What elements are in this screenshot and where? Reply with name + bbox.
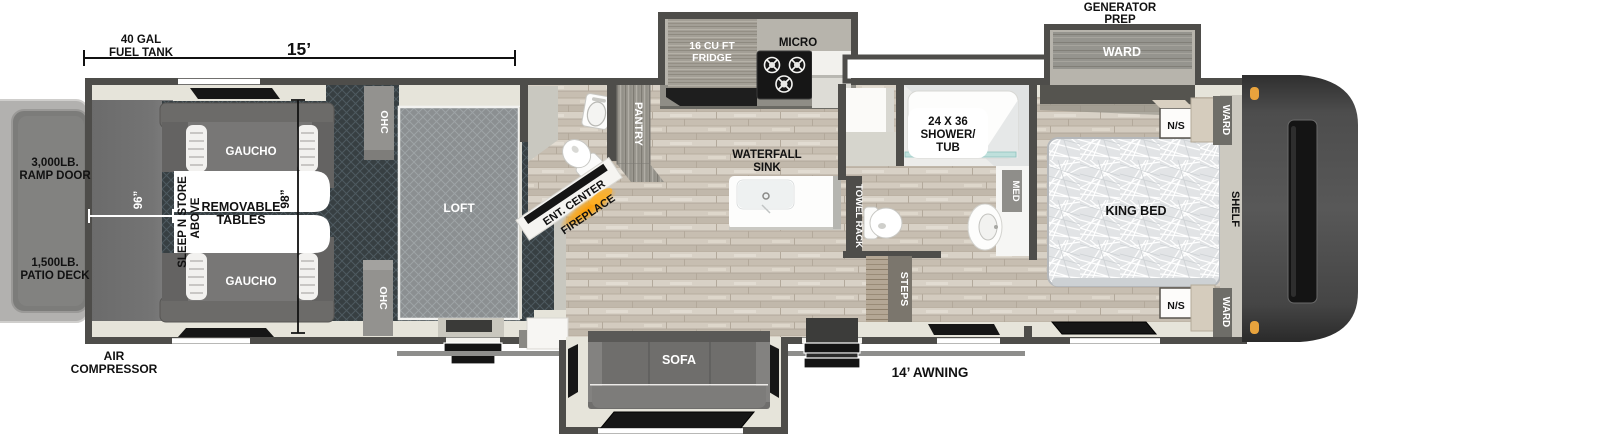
svg-text:ABOVE: ABOVE (190, 197, 202, 238)
svg-text:24 X 36: 24 X 36 (928, 116, 968, 128)
svg-text:WARD: WARD (1220, 297, 1231, 328)
svg-text:SHOWER/: SHOWER/ (921, 129, 977, 141)
svg-text:REMOVABLE: REMOVABLE (202, 200, 281, 214)
svg-text:PANTRY: PANTRY (632, 102, 644, 147)
svg-text:AIR: AIR (104, 349, 125, 363)
svg-text:KING BED: KING BED (1105, 204, 1166, 218)
svg-text:N/S: N/S (1167, 300, 1185, 312)
svg-text:TUB: TUB (936, 142, 960, 154)
svg-text:WARD: WARD (1220, 105, 1231, 136)
svg-text:TOWEL RACK: TOWEL RACK (853, 184, 864, 248)
svg-text:GENERATOR: GENERATOR (1084, 2, 1157, 14)
svg-text:OHC: OHC (378, 110, 390, 134)
svg-text:GAUCHO: GAUCHO (225, 146, 276, 158)
svg-text:COMPRESSOR: COMPRESSOR (71, 362, 158, 376)
svg-text:PATIO DECK: PATIO DECK (20, 270, 90, 282)
svg-text:N/S: N/S (1167, 120, 1185, 132)
svg-text:TABLES: TABLES (216, 213, 265, 227)
svg-text:SLEEP N STORE: SLEEP N STORE (177, 176, 189, 268)
svg-text:96”: 96” (133, 191, 145, 210)
svg-text:15’: 15’ (287, 39, 311, 59)
svg-text:FRIDGE: FRIDGE (692, 52, 732, 64)
svg-text:LOFT: LOFT (443, 201, 475, 215)
svg-text:WARD: WARD (1103, 45, 1141, 59)
svg-text:WATERFALL: WATERFALL (732, 149, 801, 161)
svg-text:MED: MED (1010, 180, 1021, 201)
svg-text:SINK: SINK (753, 162, 781, 174)
svg-text:FUEL TANK: FUEL TANK (109, 47, 174, 59)
svg-text:GAUCHO: GAUCHO (225, 276, 276, 288)
svg-text:STEPS: STEPS (898, 272, 910, 306)
svg-text:98”: 98” (278, 189, 292, 208)
svg-text:SOFA: SOFA (662, 353, 696, 367)
svg-text:14’ AWNING: 14’ AWNING (892, 365, 969, 380)
svg-text:OHC: OHC (377, 286, 389, 310)
svg-text:SHELF: SHELF (1229, 191, 1241, 227)
svg-text:16 CU FT: 16 CU FT (689, 40, 735, 52)
svg-text:MICRO: MICRO (779, 37, 817, 49)
svg-text:3,000LB.: 3,000LB. (31, 157, 78, 169)
svg-text:RAMP DOOR: RAMP DOOR (19, 170, 91, 182)
svg-text:1,500LB.: 1,500LB. (31, 257, 78, 269)
svg-text:40 GAL: 40 GAL (121, 34, 161, 46)
